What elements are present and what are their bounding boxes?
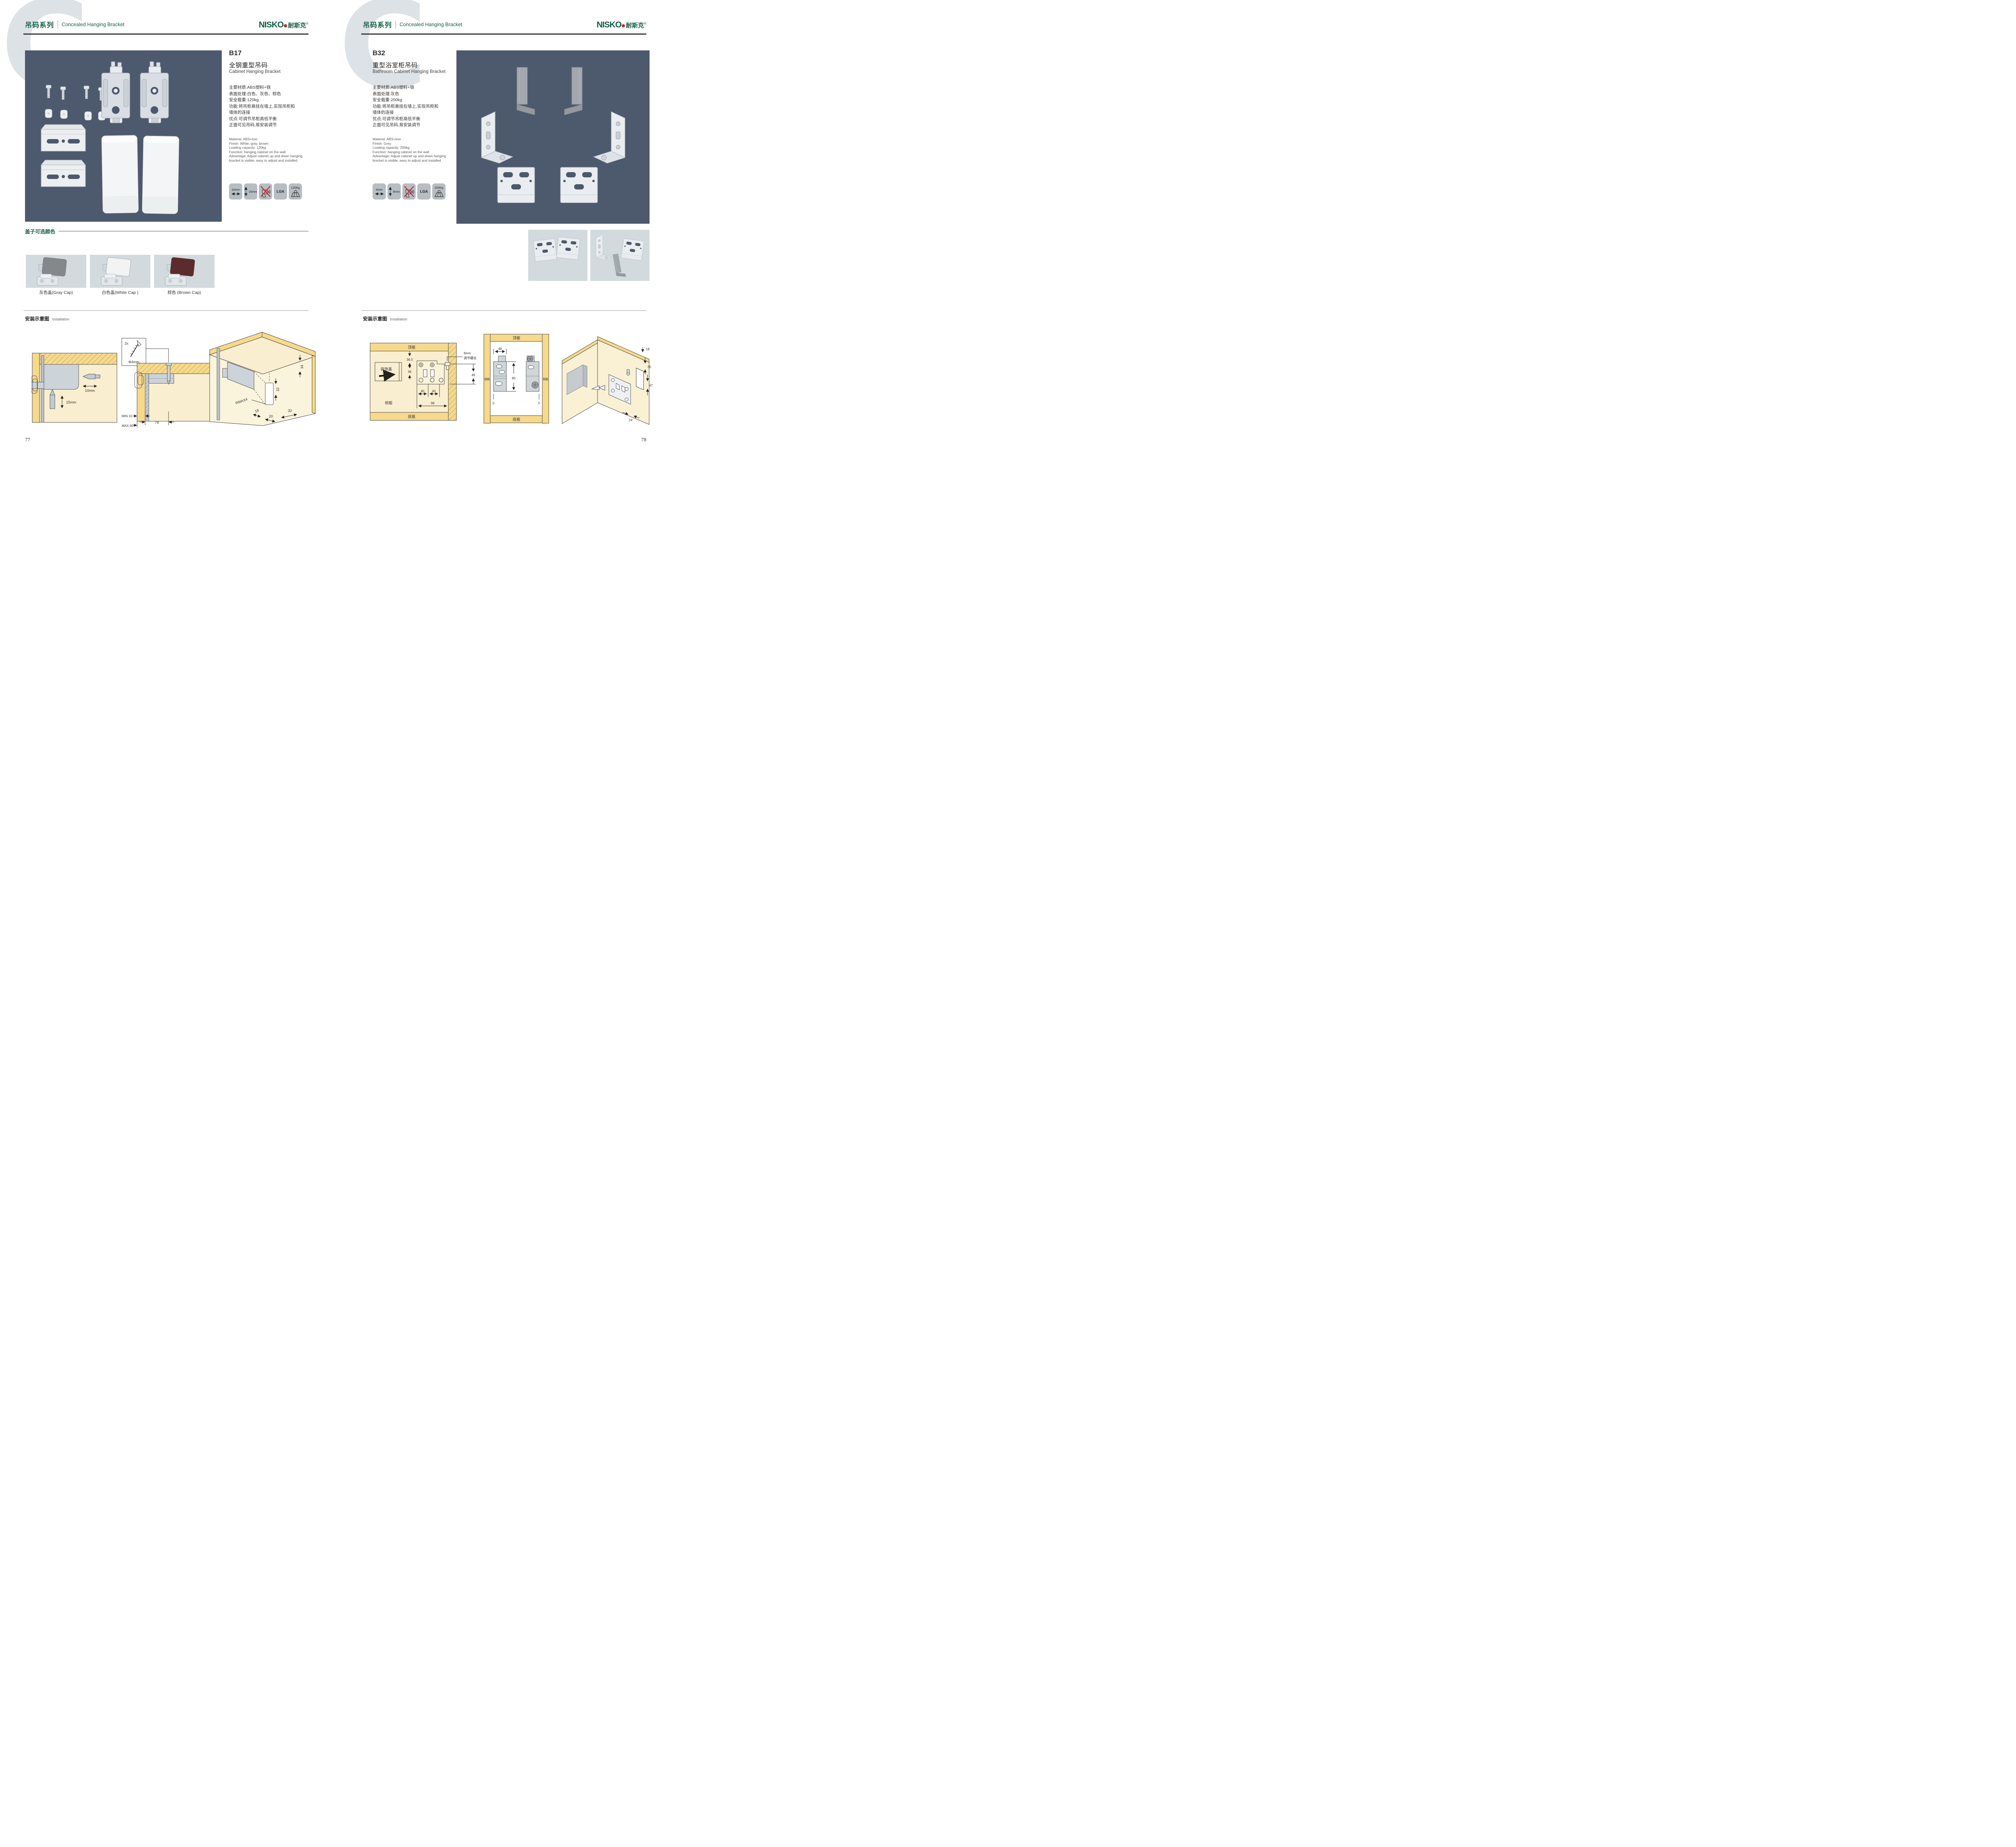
product-code: B32	[373, 49, 385, 57]
page-left: C 吊码系列 Concealed Hanging Bracket NISKO 耐…	[0, 0, 338, 462]
drill-width-icon: 10mm	[229, 183, 242, 200]
install-diagram-3d: 18 35 47 24	[557, 329, 653, 426]
page-header: 吊码系列 Concealed Hanging Bracket	[363, 19, 462, 29]
install-diagram-frame: 顶板 底板 侧板 侧板 48 8	[483, 333, 550, 424]
spec-line-en: Finish: Grey	[373, 141, 457, 146]
spec-line-en: Loading capacity: 120kg	[229, 146, 314, 150]
series-title-en: Concealed Hanging Bracket	[62, 22, 125, 27]
label-side-left: 侧板	[484, 377, 490, 381]
spec-line-en: Finish: White, gray, brown	[229, 141, 314, 146]
screw-qty: 2x	[125, 341, 129, 345]
load-label: 120Kg	[291, 186, 300, 189]
drill-depth-label: 8mm	[393, 190, 400, 193]
load-label: 200Kg	[435, 186, 444, 189]
spec-line: 正面可见吊码,易安装调节	[229, 122, 314, 129]
installation-title-en: Installation	[52, 317, 69, 321]
lga-label: LGA	[277, 189, 284, 193]
cap-label-white: 白色盖(White Cap )	[90, 289, 150, 295]
dim-34: 34	[300, 365, 304, 369]
series-title-cn: 吊码系列	[363, 19, 392, 29]
spec-line-en: Advantage: Adjust cabinet up and down ha…	[373, 154, 457, 158]
label-top-panel: 顶板	[512, 336, 521, 341]
label-side-right: 侧板	[543, 377, 548, 381]
dim-98: 98	[431, 401, 435, 405]
dim-max: MAX.30	[122, 424, 133, 428]
product-specs-cn: 主要材质:ABS塑料+铁 表面处理:灰色 安全载重:200kg 功能:将吊柜悬挂…	[373, 85, 457, 129]
install-diagram-section: 10mm 15mm	[31, 347, 119, 425]
drill-width-label: 4mm	[376, 188, 383, 191]
brand-logo-en: NISKO	[259, 20, 284, 30]
spec-line: 安全载重:200kg	[373, 97, 457, 104]
dim-36: 36	[408, 370, 412, 374]
brand-logo: NISKO 耐斯克 ®	[259, 20, 308, 30]
weight-icon	[435, 190, 444, 198]
arrow-horizontal-icon	[374, 192, 385, 196]
page-header: 吊码系列 Concealed Hanging Bracket	[25, 19, 125, 29]
spec-line: 安全载重:120kg	[229, 97, 314, 104]
label-deco-cover: 装饰盖	[381, 367, 392, 372]
no-drill-icon	[402, 183, 416, 200]
dim-24: 24	[629, 418, 633, 422]
brand-logo-cn: 耐斯克	[288, 21, 306, 29]
spec-line: 墙体的连接	[229, 110, 314, 116]
drill-depth-icon: 15mm	[244, 183, 257, 200]
spec-line: 优点:可调节吊柜高低平衡	[229, 116, 314, 123]
installation-title: 安装示意图 Installation	[363, 315, 407, 322]
installation-title-en: Installation	[390, 317, 407, 321]
spec-line: 主要材质:ABS塑料+铁	[229, 85, 314, 91]
product-specs-en: Material: ABS+iron Finish: White, gray, …	[229, 137, 314, 162]
install-diagram-elevation: 顶板 底板 侧板 装饰盖 36.5 36 8mm 调节螺丝	[369, 341, 479, 424]
dim-5l: 5	[493, 401, 495, 405]
series-title-cn: 吊码系列	[25, 19, 54, 29]
brand-logo-en: NISKO	[597, 20, 622, 30]
cap-label-brown: 棕色 (Brown Cap)	[154, 289, 215, 295]
detail-photo-plates	[528, 230, 587, 281]
series-title-en: Concealed Hanging Bracket	[400, 22, 462, 27]
product-specs-en: Material: ABS+iron Finish: Grey Loading …	[373, 137, 457, 162]
spec-line-en: Advantage: Adjust cabinet up and down ha…	[229, 154, 314, 158]
spec-line-en: Loading capacity: 200kg	[373, 146, 457, 150]
spec-line: 功能:将吊柜悬挂在墙上,实现吊柜和	[373, 104, 457, 110]
page-right: C 吊码系列 Concealed Hanging Bracket NISKO 耐…	[338, 0, 676, 462]
lga-label: LGA	[420, 189, 428, 193]
label-bottom-panel: 底板	[512, 417, 521, 422]
section-rule	[23, 310, 308, 311]
section-rule	[361, 310, 646, 311]
page-number: 77	[25, 437, 30, 443]
dim-min: MIN.10	[122, 414, 132, 418]
header-rule	[23, 33, 308, 35]
load-capacity-icon: 120Kg	[289, 183, 302, 200]
dim-10mm: 10mm	[85, 389, 95, 393]
spec-line-en: Function: hanging cabinet on the wall	[373, 150, 457, 154]
header-divider	[58, 21, 58, 29]
cap-label-gray: 灰色盖(Gray Cap)	[26, 289, 86, 295]
brand-logo-cn: 耐斯克	[626, 21, 644, 29]
install-diagram-side: 2x Φ4mm 13 MIN.10	[121, 337, 218, 428]
install-diagram-3d: 34 32 RMAX4 18 20 32	[206, 330, 319, 428]
drill-width-icon: 4mm	[373, 183, 386, 200]
product-name-cn: 重型浴室柜吊码	[373, 60, 418, 69]
detail-photo-bracket-cap	[590, 230, 650, 281]
spec-line: 正面可见吊码,易安装调节	[373, 122, 457, 129]
dim-32b: 32	[288, 409, 292, 413]
catalog-spread: C 吊码系列 Concealed Hanging Bracket NISKO 耐…	[0, 0, 676, 462]
product-name-en: Bathroom Cabinet Hanging Bracket	[373, 69, 446, 74]
dim-48: 48	[498, 347, 502, 351]
logo-dot-icon	[622, 24, 625, 27]
lga-cert-icon: LGA	[274, 183, 287, 200]
installation-title-cn: 安装示意图	[25, 315, 49, 322]
note-screw-name: 调节螺丝	[464, 356, 477, 360]
page-number: 78	[641, 437, 646, 443]
spec-line: 功能:将吊柜悬挂在墙上,实现吊柜和	[229, 104, 314, 110]
installation-title: 安装示意图 Installation	[25, 315, 69, 322]
installation-title-cn: 安装示意图	[363, 315, 387, 322]
dim-35: 35	[648, 365, 651, 369]
dim-40b: 40	[432, 389, 436, 393]
product-photo-b17	[25, 50, 222, 222]
product-code: B17	[229, 49, 242, 57]
header-rule	[361, 33, 646, 35]
dim-20: 20	[269, 414, 273, 418]
label-top-panel: 顶板	[408, 345, 416, 350]
brand-logo: NISKO 耐斯克 ®	[597, 20, 646, 30]
spec-line-en: bracket is visible, easy to adjust and i…	[229, 158, 314, 163]
dim-40a: 40	[421, 389, 425, 393]
spec-line-en: bracket is visible, easy to adjust and i…	[373, 158, 457, 163]
dim-18: 18	[646, 347, 650, 351]
drill-width-label: 10mm	[231, 188, 240, 191]
dim-78: 78	[155, 420, 159, 424]
feature-icons: 10mm 15mm LGA	[229, 183, 302, 200]
spec-line: 优点:可调节吊柜高低平衡	[373, 116, 457, 123]
cap-photo-white	[90, 255, 150, 288]
registered-mark: ®	[644, 22, 646, 25]
dim-47: 47	[649, 384, 653, 387]
weight-icon	[291, 190, 300, 198]
spec-line: 表面处理:白色、灰色、棕色	[229, 91, 314, 98]
arrow-vertical-icon	[244, 186, 248, 197]
dim-36-5: 36.5	[406, 358, 413, 362]
cap-photo-gray	[26, 255, 86, 288]
spec-line: 表面处理:灰色	[373, 91, 457, 98]
product-specs-cn: 主要材质:ABS塑料+铁 表面处理:白色、灰色、棕色 安全载重:120kg 功能…	[229, 85, 314, 129]
registered-mark: ®	[306, 22, 308, 25]
arrow-vertical-icon	[389, 186, 392, 197]
product-photo-b32	[456, 50, 650, 224]
spec-line-en: Material: ABS+iron	[229, 137, 314, 141]
product-name-cn: 全钢重型吊码	[229, 60, 268, 69]
logo-dot-icon	[284, 24, 287, 27]
lga-cert-icon: LGA	[417, 183, 431, 200]
cap-photo-brown	[154, 255, 215, 288]
label-bottom-panel: 底板	[408, 414, 416, 419]
dim-32v: 32	[276, 387, 280, 391]
spec-line-en: Function: hanging cabinet on the wall	[229, 150, 314, 154]
dim-48r: 48	[472, 373, 475, 377]
header-divider	[396, 21, 396, 29]
spec-line: 墙体的连接	[373, 110, 457, 116]
arrow-horizontal-icon	[231, 192, 241, 196]
spec-line: 主要材质:ABS塑料+铁	[373, 85, 457, 91]
label-side-panel: 侧板	[385, 401, 393, 406]
dim-15mm: 15mm	[66, 400, 76, 404]
feature-icons: 4mm 8mm LGA	[373, 183, 446, 200]
spec-line-en: Material: ABS+iron	[373, 137, 457, 141]
load-capacity-icon: 200Kg	[432, 183, 446, 200]
note-screw-size: 8mm	[464, 352, 471, 355]
caps-section-title: 盖子可选颜色	[25, 227, 308, 235]
drill-depth-label: 15mm	[249, 190, 257, 193]
dim-80: 80	[512, 376, 516, 380]
dim-5r: 5	[538, 401, 540, 405]
product-name-en: Cabinet Hanging Bracket	[229, 69, 281, 74]
no-drill-icon	[259, 183, 272, 200]
drill-depth-icon: 8mm	[387, 183, 401, 200]
